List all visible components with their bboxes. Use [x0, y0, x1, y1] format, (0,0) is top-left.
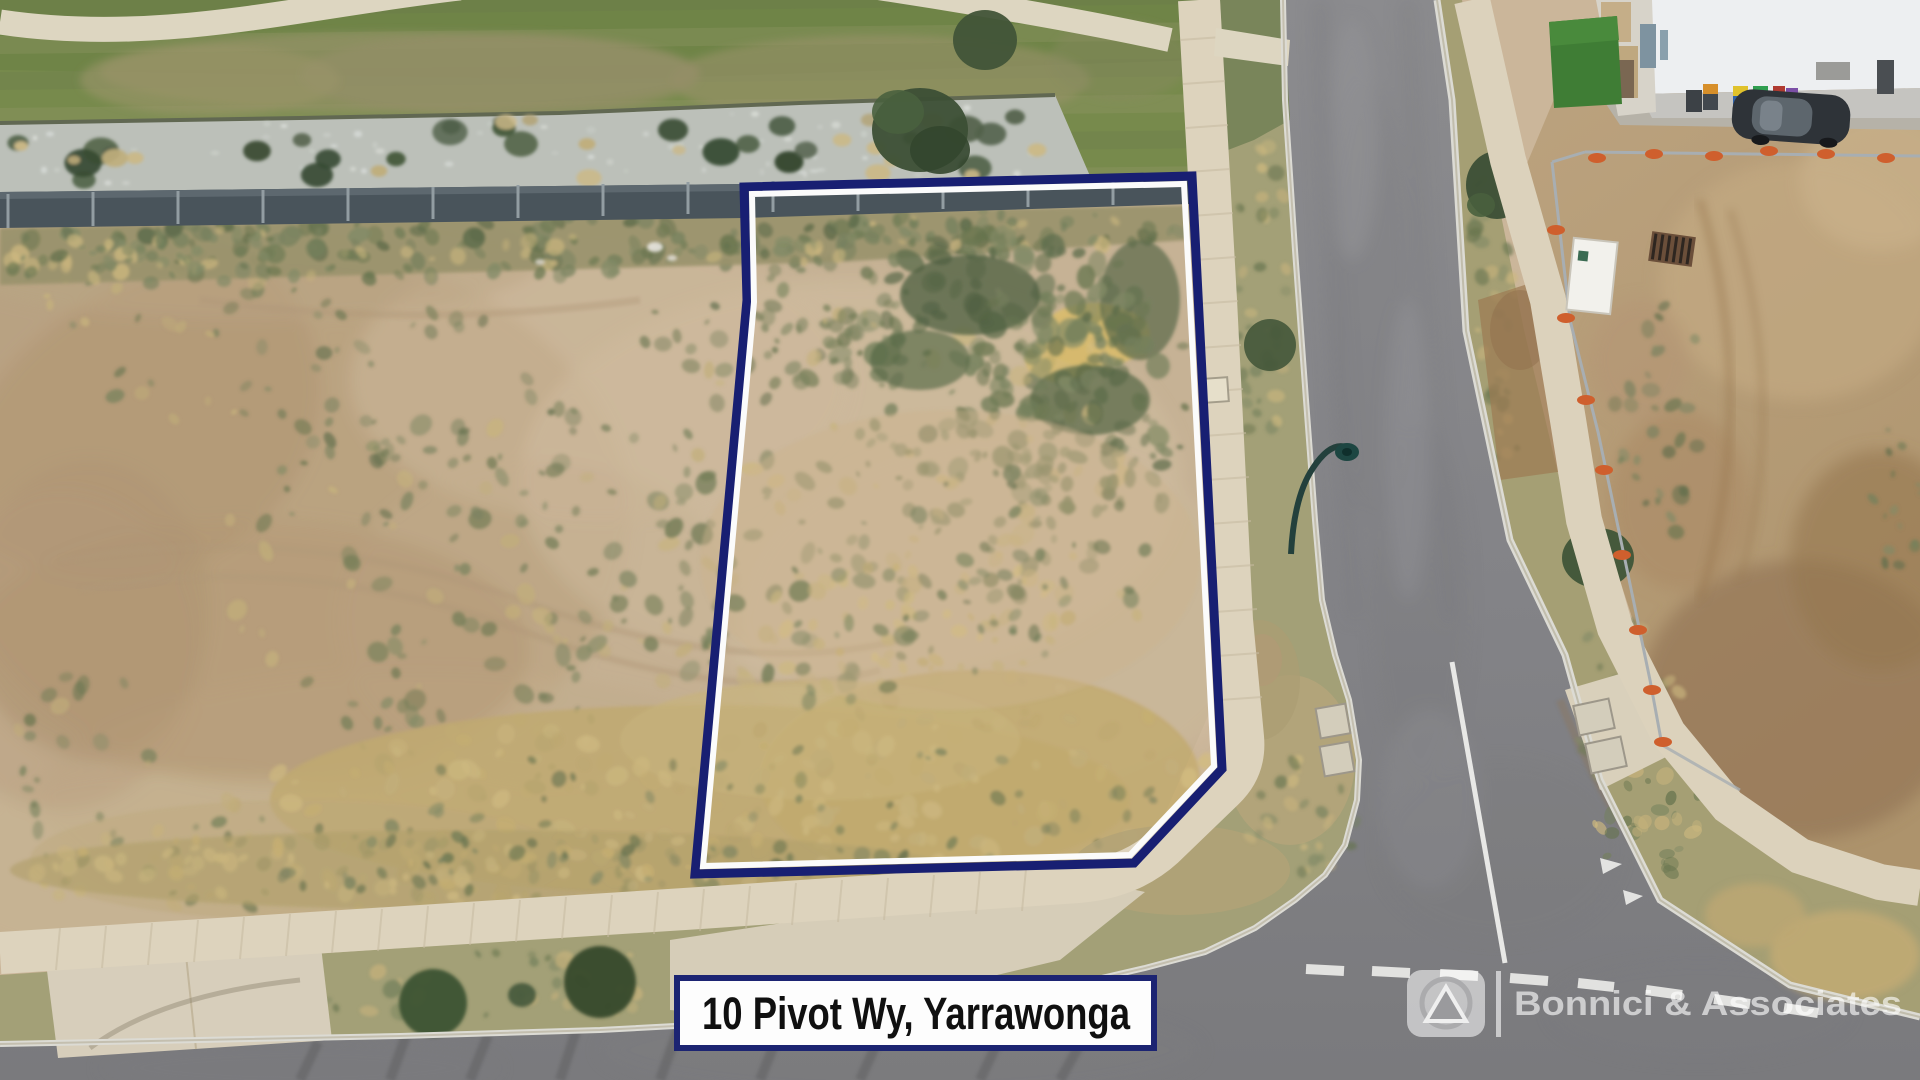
svg-text:Bonnici & Associates: Bonnici & Associates — [1514, 985, 1902, 1023]
svg-text:10 Pivot Wy, Yarrawonga: 10 Pivot Wy, Yarrawonga — [702, 988, 1131, 1039]
